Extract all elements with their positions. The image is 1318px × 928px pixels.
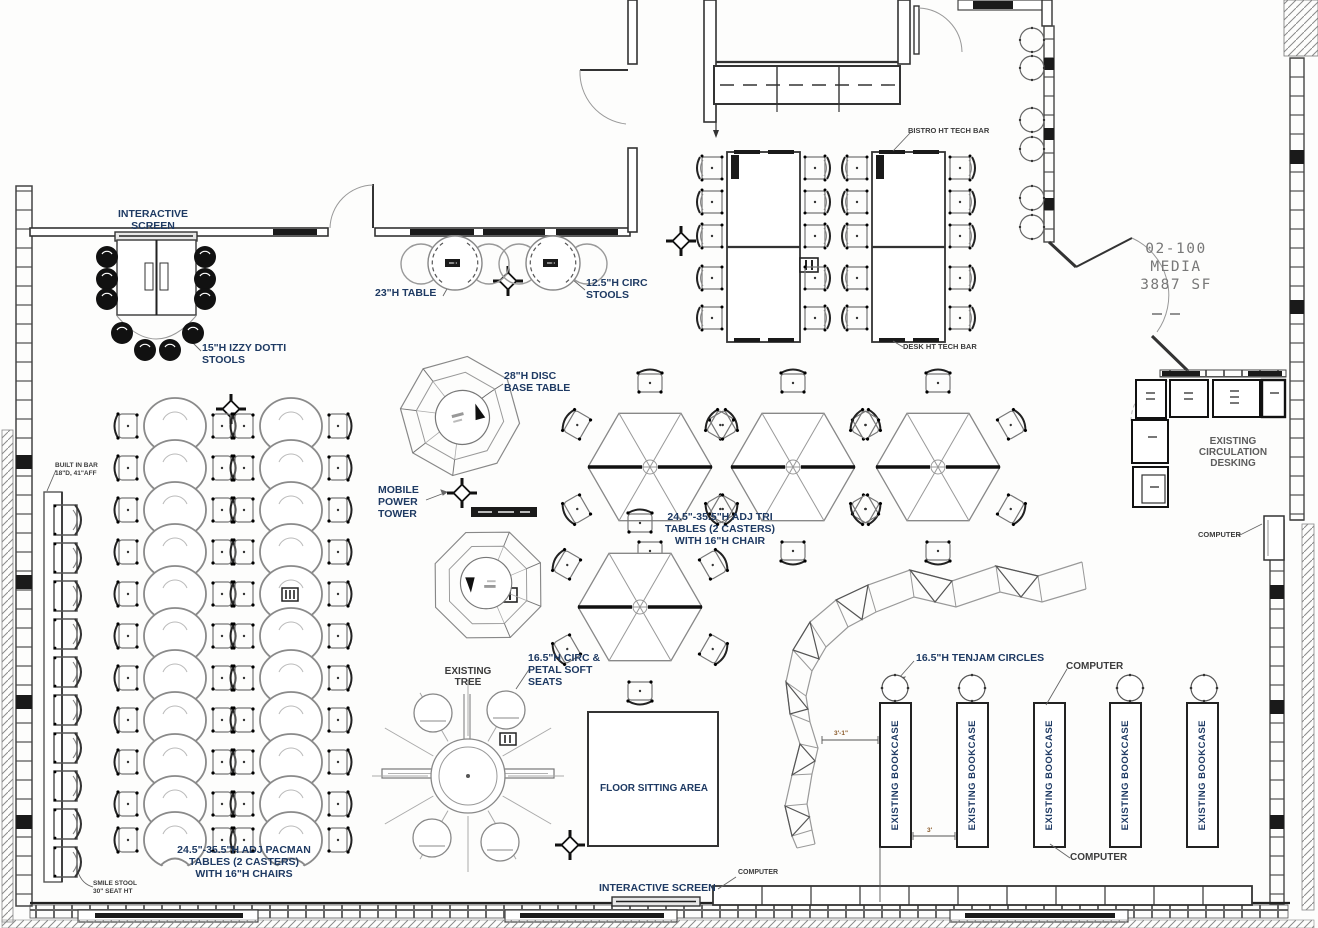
computer-bottom-label: COMPUTER [1070, 852, 1127, 863]
floor-sitting-area-box [588, 712, 718, 846]
dim-bookcase-gap-left: 3'-1" [834, 730, 848, 737]
mobile-power-label: MOBILE POWER TOWER [378, 485, 419, 520]
floor-plan-canvas: INTERACTIVE SCREEN 23"H TABLE 12.5"H CIR… [0, 0, 1318, 928]
pacman-tables-label: 24.5"-35.5"H ADJ PACMAN TABLES (2 CASTER… [168, 845, 320, 880]
built-in-bar-label: BUILT IN BAR 18"D, 41"AFF [55, 462, 98, 478]
computer-right-label: COMPUTER [1198, 530, 1241, 539]
izzy-dotti-area [115, 232, 197, 339]
room-area: 3887 SF [1126, 276, 1226, 294]
bookcase-3: EXISTING BOOKCASE [1034, 703, 1065, 847]
floor-sitting-label: FLOOR SITTING AREA [596, 783, 712, 794]
room-stamp: 02-100 MEDIA 3887 SF [1126, 240, 1226, 294]
circ-stools-label: 12.5"H CIRC STOOLS [586, 278, 648, 302]
desk-tech-bar-label: DESK HT TECH BAR [903, 342, 977, 351]
smile-stool-label: SMILE STOOL 30" SEAT HT [93, 880, 137, 896]
existing-tree-label: EXISTING TREE [438, 666, 498, 688]
dim-bookcase-gap: 3' [927, 827, 932, 834]
room-name: MEDIA [1126, 258, 1226, 276]
bookcase-4: EXISTING BOOKCASE [1110, 703, 1141, 847]
interactive-screen-bottom-label: INTERACTIVE SCREEN [599, 883, 716, 895]
circulation-desking-label: EXISTING CIRCULATION DESKING [1190, 436, 1276, 470]
bookcase-5: EXISTING BOOKCASE [1187, 703, 1218, 847]
bookcase-1: EXISTING BOOKCASE [880, 703, 911, 847]
disc-table-label: 28"H DISC BASE TABLE [504, 371, 570, 395]
petal-seats-label: 16.5"H CIRC & PETAL SOFT SEATS [528, 653, 600, 688]
interactive-screen-bottom-bar [612, 897, 700, 906]
computer-top-label: COMPUTER [1066, 661, 1123, 672]
tri-tables-label: 24.5"-35.5"H ADJ TRI TABLES (2 CASTERS) … [660, 512, 780, 547]
table-23h-label: 23"H TABLE [375, 288, 436, 300]
computer-bottom-left-label: COMPUTER [738, 869, 778, 877]
computer-counter-bottom [713, 886, 1252, 905]
bookcase-2: EXISTING BOOKCASE [957, 703, 988, 847]
tenjam-label: 16.5"H TENJAM CIRCLES [916, 653, 1044, 665]
room-number: 02-100 [1126, 240, 1226, 258]
bistro-tech-bar-label: BISTRO HT TECH BAR [908, 126, 989, 135]
interactive-screen-top-label: INTERACTIVE SCREEN [95, 209, 211, 233]
izzy-dotti-label: 15"H IZZY DOTTI STOOLS [202, 343, 286, 367]
tech-bars [727, 150, 945, 342]
